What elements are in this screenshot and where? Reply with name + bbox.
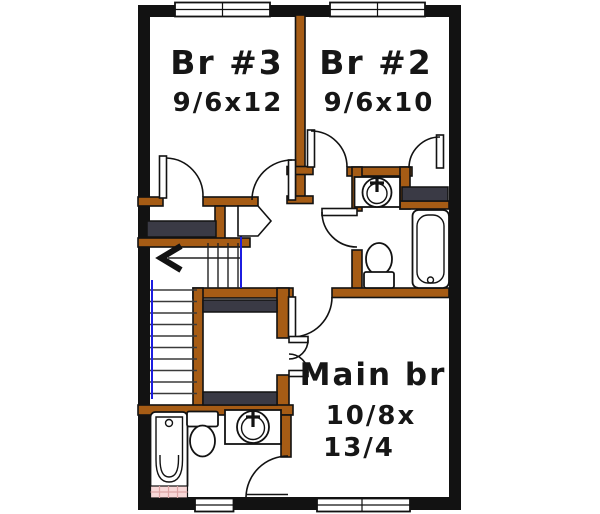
room-dims-br3: 9/6x12 (173, 88, 284, 118)
window-top-br3 (175, 3, 270, 17)
door-br2-closet (409, 135, 444, 168)
main-bath-vanity-sink (225, 410, 281, 444)
floor-plan-page: Br #3 9/6x12 Br #2 9/6x10 Main br 10/8x … (0, 0, 600, 514)
door-br3 (160, 156, 204, 198)
room-label-br2: Br #2 (319, 43, 433, 82)
br3-closet-shelf (147, 221, 216, 237)
window-bottom-main (317, 499, 410, 512)
room-dims-br2: 9/6x10 (324, 88, 435, 118)
floor-plan-svg: Br #3 9/6x12 Br #2 9/6x10 Main br 10/8x … (0, 0, 600, 514)
main-closet-shelf-bottom (203, 392, 277, 405)
room-dims-main-1: 10/8x (326, 401, 417, 431)
hall-bath-vanity-sink (355, 177, 401, 207)
door-main-bedroom (289, 297, 333, 337)
main-bath-tile-floor (151, 486, 188, 498)
main-closet-shelf-top (203, 300, 277, 312)
door-hall-bathroom (322, 209, 357, 248)
room-label-main: Main br (300, 357, 447, 393)
door-br2 (308, 130, 348, 167)
main-bath-bathtub (151, 412, 188, 490)
main-bath-toilet (187, 412, 218, 457)
window-top-br2 (330, 3, 425, 17)
window-bottom-bath (195, 499, 234, 512)
door-linen-closet (238, 206, 271, 236)
hall-bath-bathtub (413, 210, 450, 288)
door-hall (252, 160, 296, 200)
br2-closet-shelf (402, 187, 448, 201)
door-main-bathroom (246, 456, 288, 497)
room-dims-main-2: 13/4 (323, 433, 395, 463)
room-label-br3: Br #3 (170, 43, 284, 82)
hall-bath-toilet (364, 243, 394, 288)
